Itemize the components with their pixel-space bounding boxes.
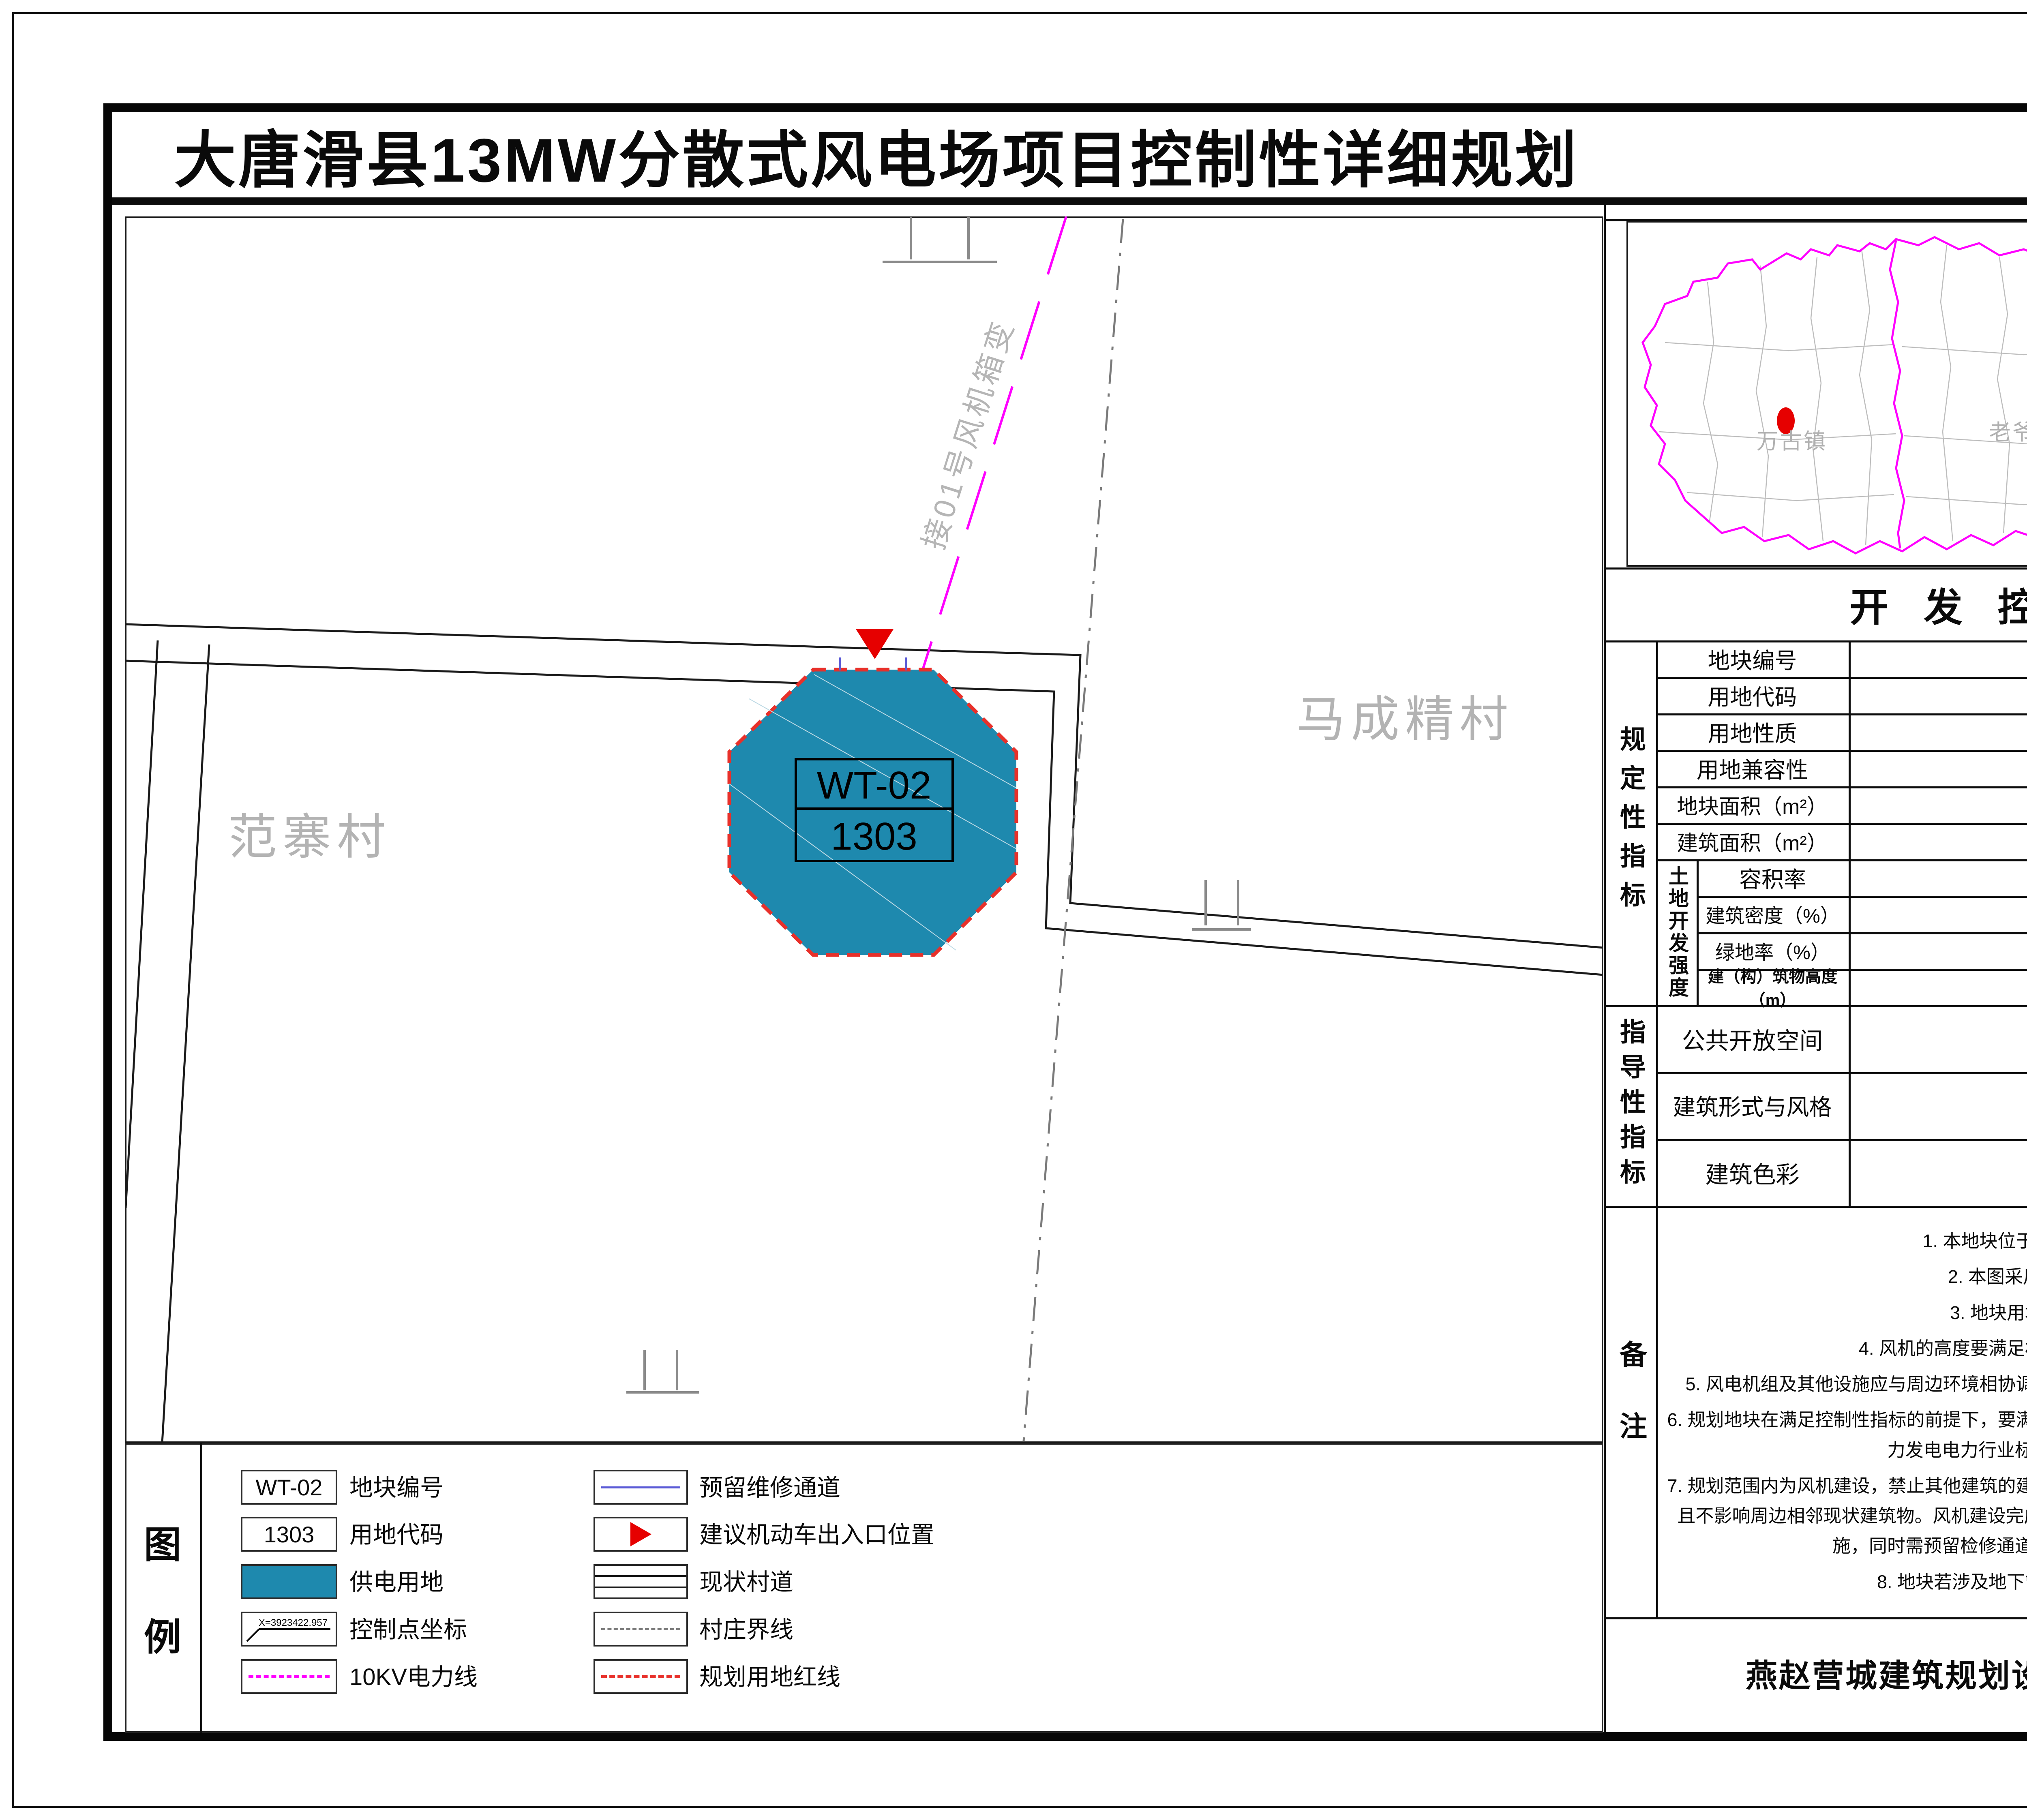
note-line: 2. 本图采用2000国家大地坐标系； <box>1662 1262 2027 1292</box>
row-value-plot-number: WT-02 <box>1850 640 2027 677</box>
row-value-height: ≤210 <box>1850 969 2027 1005</box>
note-line: 1. 本地块位于滑县万古镇范寨村东北部； <box>1662 1226 2027 1256</box>
indicator-table-title: 开 发 控 制 指 标 <box>1604 569 2027 639</box>
row-label-building-area: 建筑面积（m²） <box>1658 823 1847 859</box>
plan-map: 接01号风机箱变 WT-02 1303 范寨村 <box>125 216 1603 1443</box>
plot-boundary-octagon <box>729 670 1016 955</box>
row-label-open-space: 公共开放空间 <box>1658 1005 1847 1072</box>
row-label-far: 容积率 <box>1698 859 1847 896</box>
note-line: 5. 风电机组及其他设施应与周边环境相协调，减少对周边农田、生产设施等的干扰，确… <box>1662 1369 2027 1399</box>
note-line: 7. 规划范围内为风机建设，禁止其他建筑的建设，建筑物、构筑物需在基地内建设，不… <box>1662 1471 2027 1561</box>
village-boundary-icon <box>601 1628 680 1630</box>
legend-sample-red-line <box>594 1659 688 1694</box>
row-label-height: 建（构）筑物高度（m） <box>1698 969 1847 1005</box>
plan-sheet: 大唐滑县13MW分散式风电场项目控制性详细规划 地块开发控制图则 接01号风机箱… <box>0 0 2027 1820</box>
location-minimap: 万古镇 老爷庙乡 <box>1626 221 2027 567</box>
note-line: 8. 地块若涉及地下管线、文物须征求相关部门意见。 <box>1662 1567 2027 1597</box>
legend-label-entrance: 建议机动车出入口位置 <box>699 1517 934 1548</box>
plot-code-label: 1303 <box>831 815 917 858</box>
plot-number-label: WT-02 <box>817 764 932 807</box>
row-value-building-style: -- <box>1850 1072 2027 1139</box>
legend-sample-plot-number: WT-02 <box>241 1470 337 1505</box>
legend-sample-existing-road <box>594 1564 688 1599</box>
legend-sample-power-land <box>241 1564 337 1599</box>
legend-label-10kv-line: 10KV电力线 <box>349 1659 478 1691</box>
legend-label-village-boundary: 村庄界线 <box>699 1612 793 1643</box>
row-label-building-style: 建筑形式与风格 <box>1658 1072 1847 1139</box>
legend-sample-10kv-line <box>241 1659 337 1694</box>
legend-title: 图例 <box>125 1443 200 1733</box>
row-label-land-use: 用地性质 <box>1658 713 1847 750</box>
notes-block: 1. 本地块位于滑县万古镇范寨村东北部； 2. 本图采用2000国家大地坐标系；… <box>1662 1210 2027 1613</box>
row-value-density: -- <box>1850 896 2027 932</box>
legend-label-control-point: 控制点坐标 <box>349 1612 467 1643</box>
legend-label-red-line: 规划用地红线 <box>699 1659 840 1691</box>
note-line: 4. 风机的高度要满足相关技术规范及当地净空保护要求； <box>1662 1334 2027 1364</box>
red-line-icon <box>601 1675 680 1678</box>
row-value-land-use: 供电用地 <box>1850 713 2027 750</box>
row-label-building-color: 建筑色彩 <box>1658 1139 1847 1206</box>
note-line: 6. 规划地块在满足控制性指标的前提下，要满足相关技术规范要求。同时还应满足风力… <box>1662 1405 2027 1465</box>
legend-sample-village-boundary <box>594 1612 688 1647</box>
village-label-right: 马成精村 <box>1296 692 1514 747</box>
legend-sample-land-code: 1303 <box>241 1517 337 1552</box>
group-notes: 备注 <box>1606 1206 1656 1617</box>
legend-divider <box>200 1443 202 1733</box>
design-company: 燕赵营城建筑规划设计有限公司 <box>1613 1617 2027 1729</box>
minimap-town-right-label: 老爷庙乡 <box>1989 420 2027 445</box>
entrance-triangle-icon <box>630 1522 651 1546</box>
page-title: 大唐滑县13MW分散式风电场项目控制性详细规划 <box>174 114 1579 195</box>
legend-sample-maintenance <box>594 1470 688 1505</box>
row-label-plot-number: 地块编号 <box>1658 640 1847 677</box>
row-value-compatibility: -- <box>1850 750 2027 786</box>
row-label-compatibility: 用地兼容性 <box>1658 750 1847 786</box>
10kv-line-icon <box>249 1675 330 1678</box>
legend-label-land-code: 用地代码 <box>349 1517 444 1548</box>
control-point-coordinate: X=3923422.957 <box>259 1617 328 1628</box>
note-line: 3. 地块用地面积以土地实测为准； <box>1662 1298 2027 1328</box>
row-label-density: 建筑密度（%） <box>1698 896 1847 932</box>
legend-label-maintenance: 预留维修通道 <box>699 1470 840 1501</box>
legend-panel <box>125 1443 1603 1733</box>
legend-label-plot-number: 地块编号 <box>349 1470 444 1501</box>
legend-sample-entrance <box>594 1517 688 1552</box>
row-value-building-area: -- <box>1850 823 2027 859</box>
row-value-green-rate: -- <box>1850 932 2027 969</box>
row-value-open-space: -- <box>1850 1005 2027 1072</box>
village-label-left: 范寨村 <box>228 810 391 864</box>
row-value-far: -- <box>1850 859 2027 896</box>
row-value-plot-area: 311.34 <box>1850 786 2027 823</box>
legend-label-existing-road: 现状村道 <box>699 1564 793 1596</box>
group-guidance: 指导性指标 <box>1606 1005 1656 1206</box>
row-value-building-color: -- <box>1850 1139 2027 1206</box>
group-regulatory: 规定性指标 <box>1606 640 1656 1005</box>
legend-sample-control-point: X=3923422.957 <box>241 1612 337 1647</box>
title-underline <box>112 197 2027 205</box>
row-label-plot-area: 地块面积（m²） <box>1658 786 1847 823</box>
maintenance-line-icon <box>601 1486 680 1488</box>
row-value-land-code: 1303 <box>1850 677 2027 713</box>
legend-label-power-land: 供电用地 <box>349 1564 444 1596</box>
group-land-intensity: 土地开发强度 <box>1658 859 1697 1005</box>
row-label-land-code: 用地代码 <box>1658 677 1847 713</box>
minimap-town-left-label: 万古镇 <box>1757 429 1827 454</box>
